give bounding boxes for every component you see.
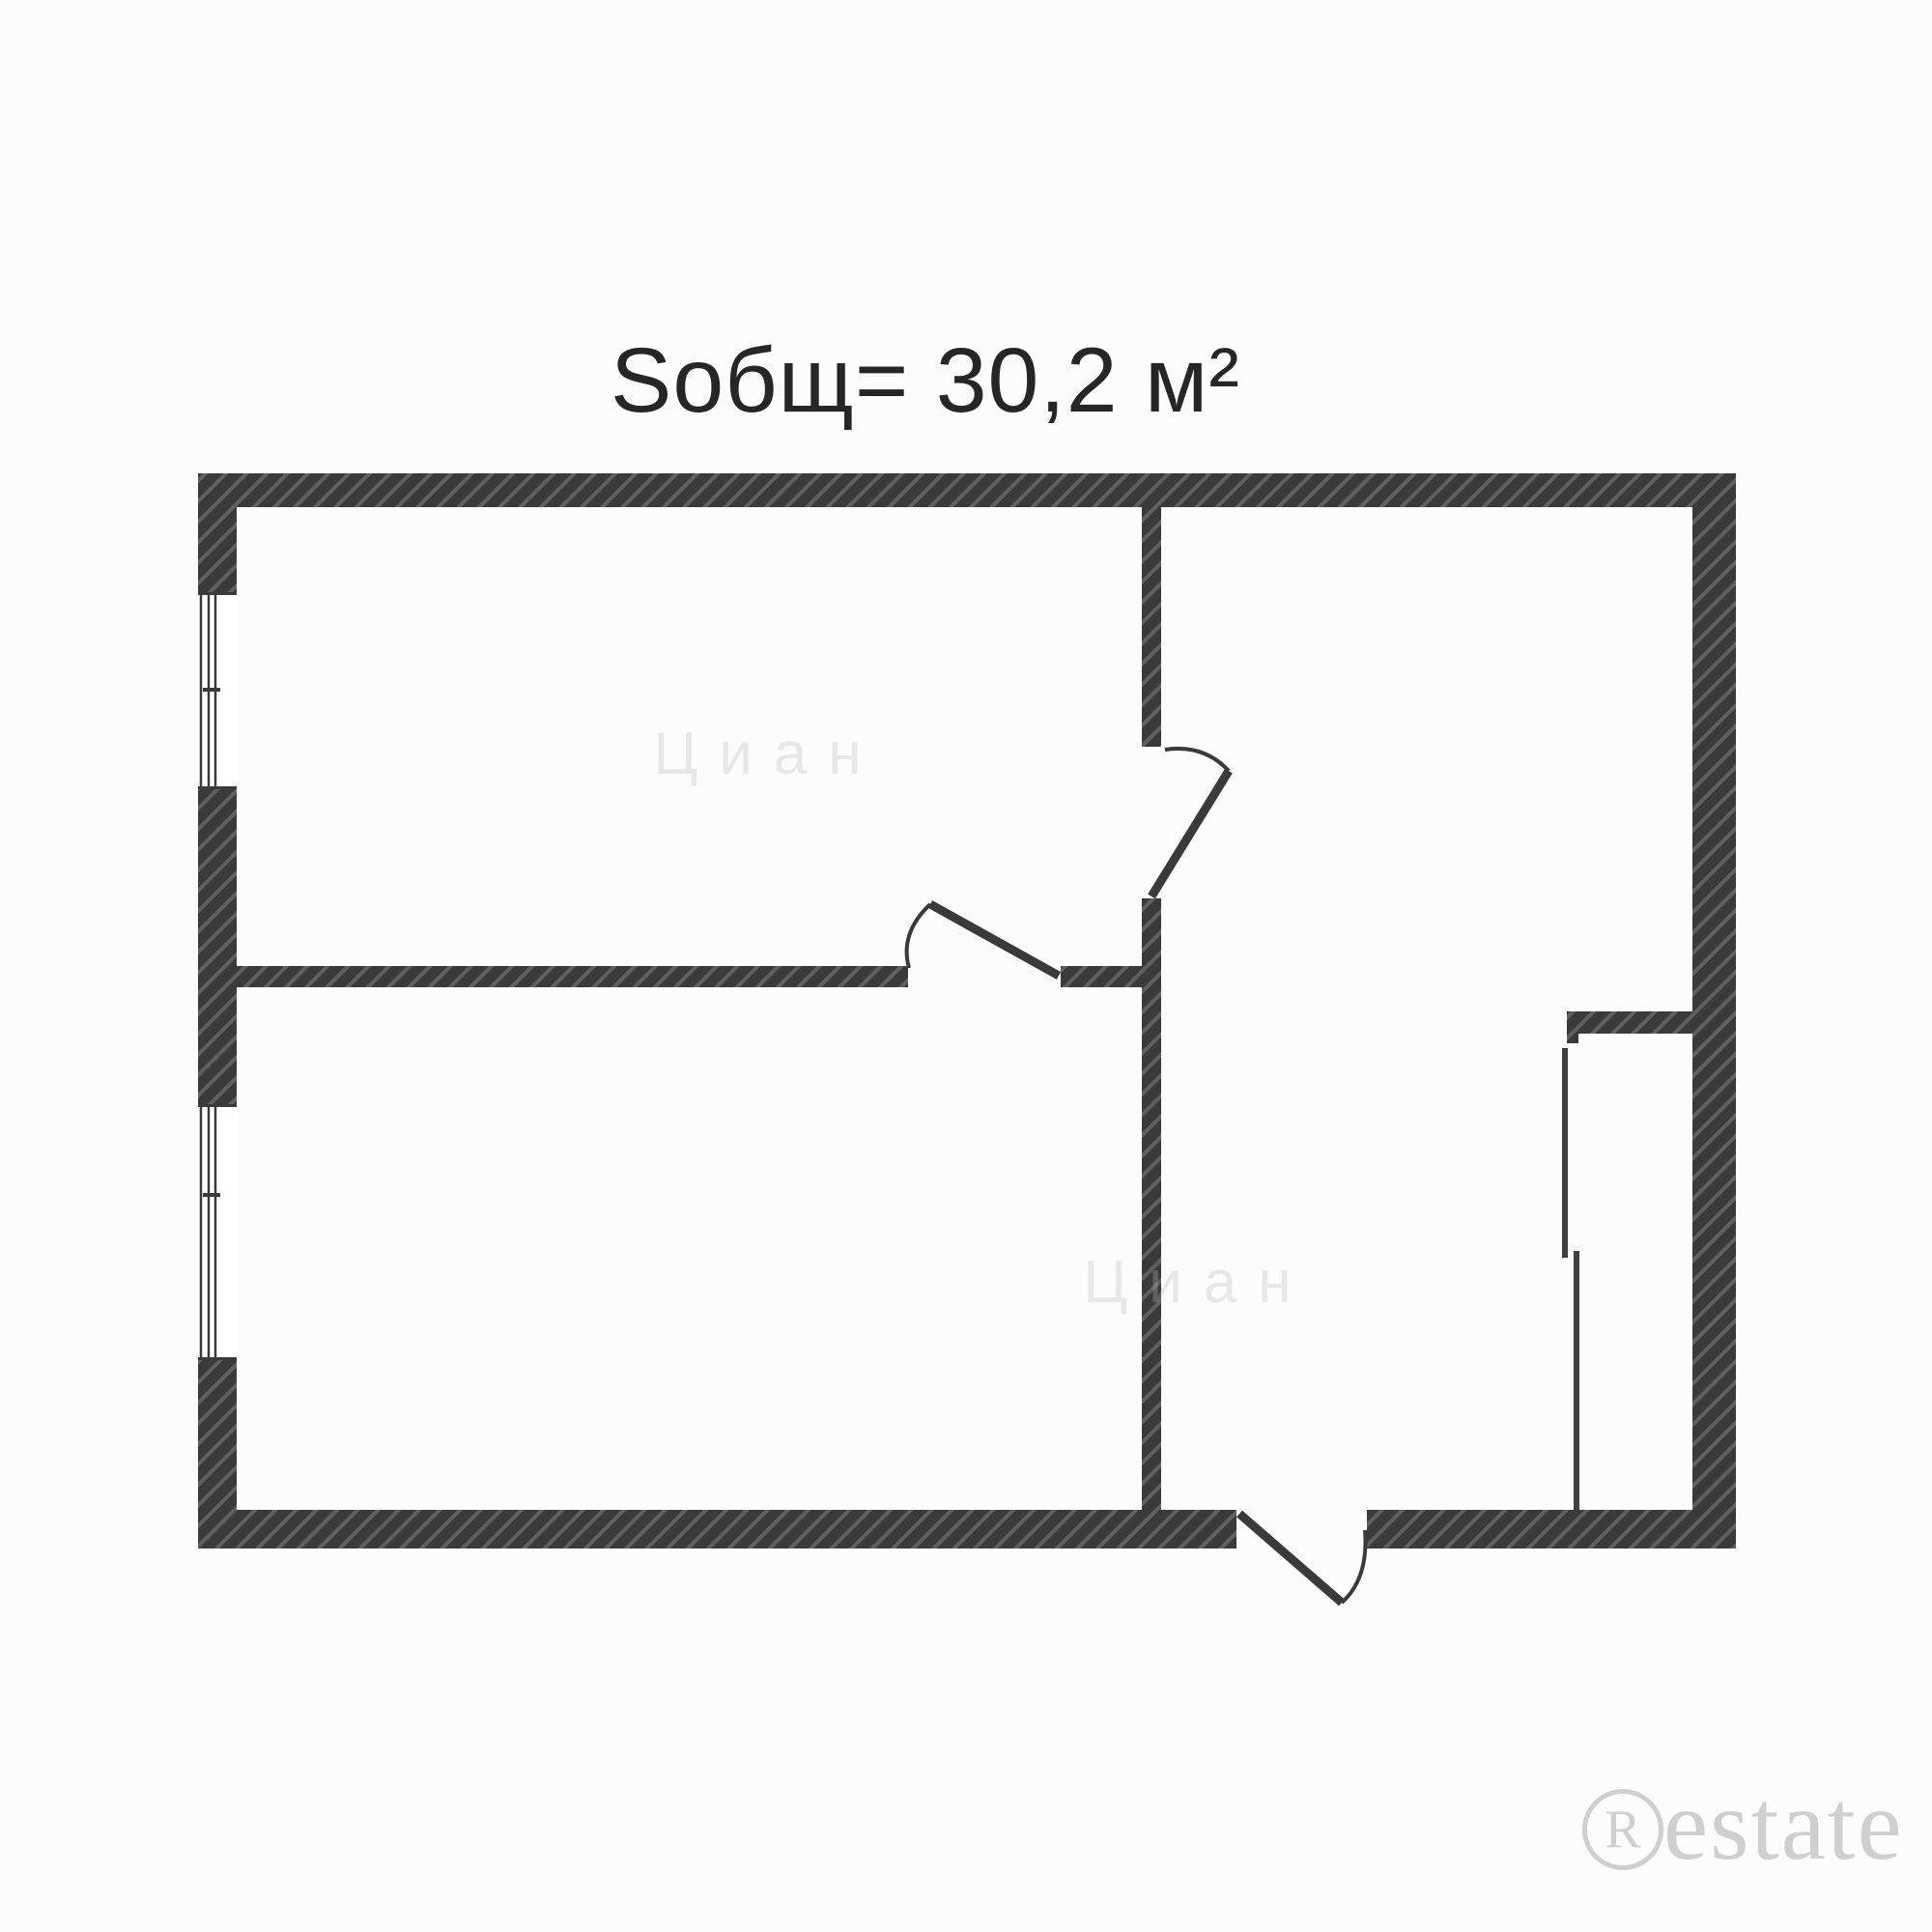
- restate-logo-text: estate: [1663, 1776, 1904, 1876]
- vertical-partition-upper: [1142, 507, 1161, 747]
- top-wall: [198, 473, 1736, 507]
- closet-thin-partition-lower: [1574, 1251, 1579, 1510]
- door-swing-arc: [1342, 1530, 1366, 1603]
- cian-watermark-upper: Циан: [653, 720, 882, 788]
- bottom-wall-left-segment: [198, 1510, 1236, 1548]
- bottom-wall-right-segment: [1367, 1510, 1736, 1548]
- floor-plan-image: Sобщ= 30,2 м²: [0, 0, 1932, 1932]
- window-opening: [198, 1104, 237, 1360]
- closet-thin-partition-upper: [1562, 1048, 1568, 1258]
- closet-stub-wall: [1567, 1011, 1692, 1034]
- entrance-door: [1239, 1514, 1366, 1603]
- door-swing-arc: [1165, 749, 1229, 771]
- lower-left-window: [198, 1104, 237, 1360]
- closet-stub-tab: [1567, 1011, 1578, 1043]
- outer-walls: [198, 473, 1736, 1548]
- cian-watermark-lower: Циан: [1083, 1248, 1312, 1317]
- right-wall: [1692, 473, 1736, 1548]
- left-wall-middle-segment: [198, 789, 237, 1104]
- door-swing-arc: [907, 904, 930, 968]
- upper-left-window: [198, 592, 237, 789]
- interior-walls: [237, 507, 1692, 1510]
- restate-logo-icon: R: [1582, 1789, 1663, 1870]
- door-leaf: [930, 904, 1059, 976]
- restate-watermark: R estate: [1582, 1776, 1904, 1876]
- floor-plan-drawing: [0, 0, 1932, 1932]
- horizontal-partition-left: [237, 966, 908, 987]
- left-wall-upper-segment: [198, 473, 237, 592]
- horizontal-partition-right: [1061, 966, 1142, 987]
- interior-door-between-rooms: [907, 904, 1059, 976]
- door-leaf: [1151, 771, 1229, 896]
- interior-door-hallway: [1151, 749, 1229, 896]
- left-wall-lower-segment: [198, 1360, 237, 1548]
- vertical-partition-lower: [1142, 898, 1161, 1510]
- door-leaf: [1239, 1514, 1342, 1603]
